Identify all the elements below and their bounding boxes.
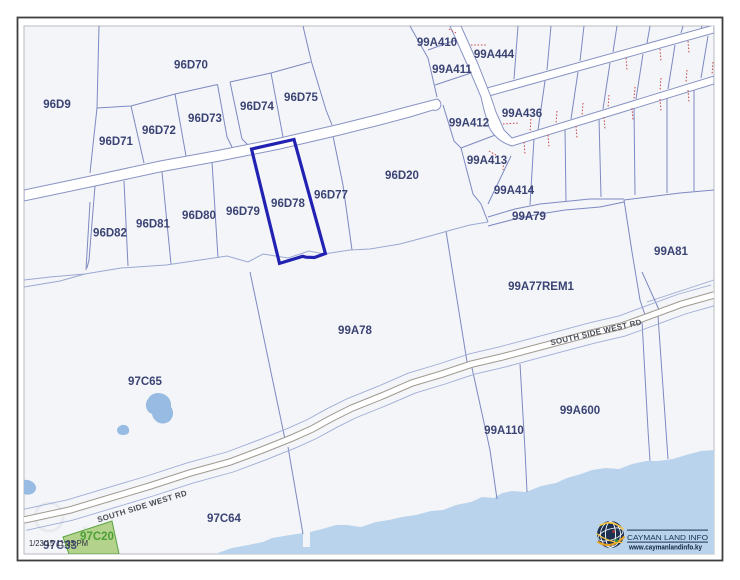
svg-text:99A444: 99A444 <box>474 49 515 61</box>
svg-text:96D72: 96D72 <box>142 125 176 137</box>
svg-text:96D20: 96D20 <box>385 170 419 182</box>
svg-text:99A600: 99A600 <box>560 405 600 417</box>
svg-text:99A79: 99A79 <box>512 211 546 223</box>
svg-text:96D80: 96D80 <box>182 210 216 222</box>
svg-text:99A110: 99A110 <box>484 425 524 437</box>
svg-text:96D78: 96D78 <box>271 198 305 210</box>
svg-text:99A77REM1: 99A77REM1 <box>508 281 574 293</box>
svg-text:96D74: 96D74 <box>240 101 274 113</box>
svg-text:99A411: 99A411 <box>432 64 472 76</box>
svg-text:99A78: 99A78 <box>338 325 372 337</box>
svg-text:96D81: 96D81 <box>136 219 170 231</box>
svg-text:96D9: 96D9 <box>43 99 71 111</box>
svg-text:96D82: 96D82 <box>93 228 127 240</box>
svg-text:99A436: 99A436 <box>502 108 542 120</box>
svg-text:1/23/15 11:03 PM: 1/23/15 11:03 PM <box>29 539 88 548</box>
svg-text:96D79: 96D79 <box>226 206 260 218</box>
svg-text:97C64: 97C64 <box>207 513 241 525</box>
svg-text:96D77: 96D77 <box>314 190 348 202</box>
svg-text:96D71: 96D71 <box>99 136 133 148</box>
svg-text:96D70: 96D70 <box>174 60 208 72</box>
svg-text:96D75: 96D75 <box>284 92 318 104</box>
svg-text:99A414: 99A414 <box>494 185 535 197</box>
svg-text:99A412: 99A412 <box>449 118 489 130</box>
svg-text:99A81: 99A81 <box>654 246 688 258</box>
svg-text:96D73: 96D73 <box>188 113 222 125</box>
svg-text:CAYMAN LAND INFO: CAYMAN LAND INFO <box>627 533 708 542</box>
svg-text:99A410: 99A410 <box>417 37 457 49</box>
svg-text:97C65: 97C65 <box>128 376 162 388</box>
svg-text:99A413: 99A413 <box>467 155 507 167</box>
svg-text:www.caymanlandinfo.ky: www.caymanlandinfo.ky <box>628 542 703 551</box>
